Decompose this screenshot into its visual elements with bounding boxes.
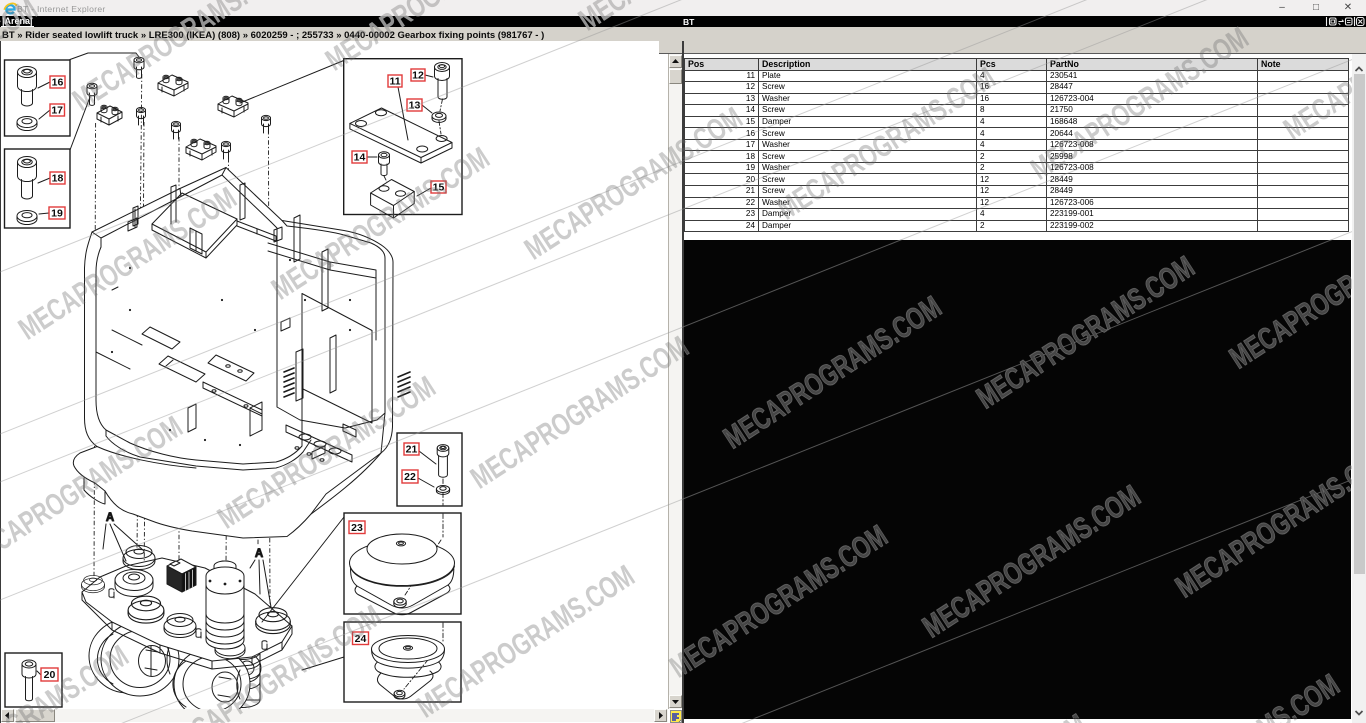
svg-text:19: 19 [51,208,63,220]
svg-text:17: 17 [51,105,63,117]
svg-text:A: A [106,512,114,524]
svg-text:23: 23 [351,522,363,534]
svg-text:15: 15 [433,182,445,194]
svg-text:20: 20 [44,669,56,681]
svg-text:21: 21 [406,444,418,456]
svg-text:11: 11 [389,76,400,88]
svg-text:14: 14 [354,152,366,164]
svg-text:12: 12 [412,70,424,82]
svg-text:24: 24 [355,633,367,645]
svg-text:16: 16 [52,77,64,89]
svg-text:13: 13 [409,100,421,112]
svg-text:18: 18 [52,173,64,185]
svg-text:22: 22 [404,471,416,483]
svg-text:A: A [255,548,263,560]
